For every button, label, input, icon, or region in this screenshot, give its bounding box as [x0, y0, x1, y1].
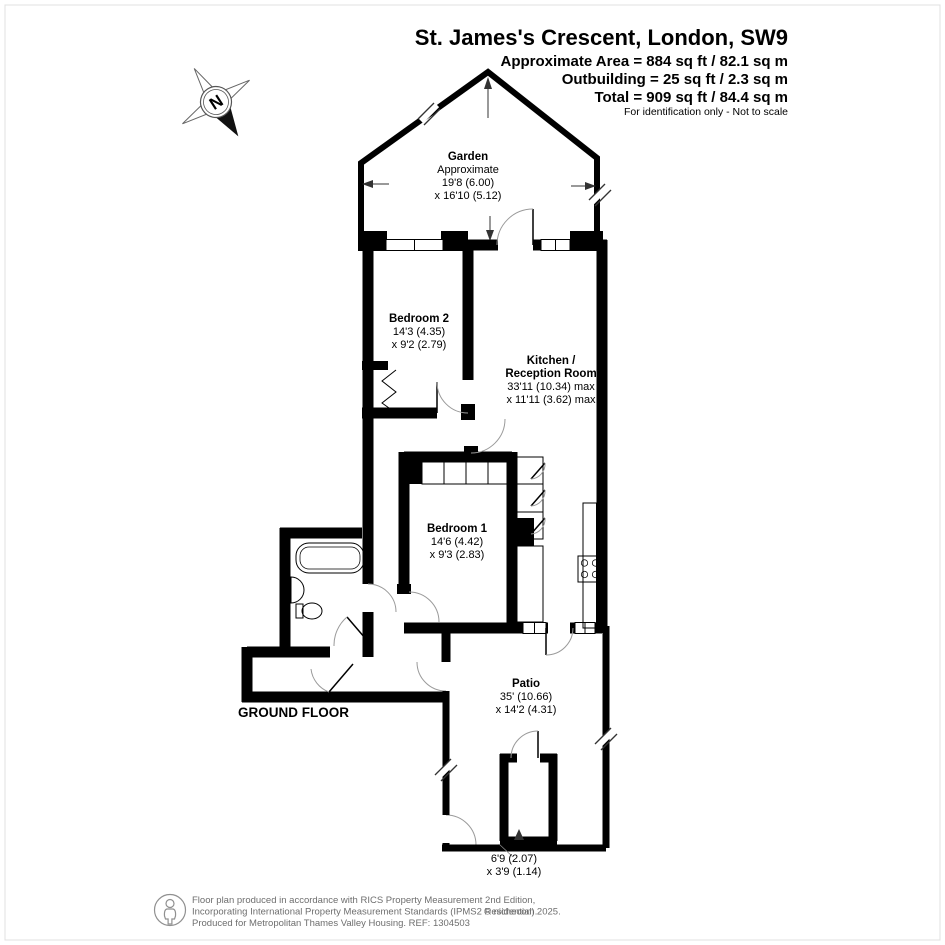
- door-vestibule: [417, 662, 446, 691]
- footer-copyright: © nichecom 2025.: [484, 907, 561, 918]
- svg-text:33'11 (10.34) max: 33'11 (10.34) max: [507, 381, 595, 393]
- svg-text:x 11'11 (3.62) max: x 11'11 (3.62) max: [506, 394, 596, 406]
- interior-exterior-walls: [242, 240, 607, 702]
- svg-text:6'9 (2.07): 6'9 (2.07): [491, 853, 537, 865]
- label-garden: Garden Approximate 19'8 (6.00) x 16'10 (…: [435, 151, 502, 202]
- bathroom-fixtures: [291, 543, 364, 619]
- door-bedroom1: [409, 592, 439, 622]
- window-bedroom2-top: [386, 240, 443, 251]
- svg-text:Bedroom 2: Bedroom 2: [389, 313, 449, 325]
- windows: [386, 240, 595, 634]
- kitchen-counter-left: [515, 546, 543, 622]
- footer-line1: Floor plan produced in accordance with R…: [192, 895, 535, 906]
- wall-stubs: [358, 231, 603, 634]
- closet-bifold-door: [382, 370, 396, 413]
- window-kitchen-top: [541, 240, 570, 251]
- title-block: St. James's Crescent, London, SW9 Approx…: [415, 25, 788, 118]
- total-area: Total = 909 sq ft / 84.4 sq m: [594, 89, 788, 106]
- svg-text:x 3'9 (1.14): x 3'9 (1.14): [487, 866, 542, 878]
- compass-icon: N: [161, 47, 272, 159]
- footer-line3: Produced for Metropolitan Thames Valley …: [192, 918, 470, 929]
- wardrobe-bedroom1: [422, 460, 510, 484]
- door-bathroom: [368, 584, 396, 612]
- door-garden: [497, 209, 533, 245]
- svg-text:14'3 (4.35): 14'3 (4.35): [393, 326, 445, 338]
- svg-text:14'6 (4.42): 14'6 (4.42): [431, 536, 483, 548]
- patio-break-marks: [435, 728, 617, 781]
- page-title: St. James's Crescent, London, SW9: [415, 25, 788, 50]
- toilet: [296, 603, 322, 619]
- bathtub-inner: [300, 547, 360, 569]
- door-front: [311, 664, 353, 692]
- svg-text:Kitchen /: Kitchen /: [527, 355, 576, 367]
- floorplan-page: St. James's Crescent, London, SW9 Approx…: [0, 0, 945, 945]
- outbuilding-arrow: [514, 829, 524, 840]
- svg-text:Garden: Garden: [448, 151, 488, 163]
- outbuilding: [499, 731, 557, 857]
- svg-text:Patio: Patio: [512, 678, 540, 690]
- svg-text:x 9'3 (2.83): x 9'3 (2.83): [430, 549, 485, 561]
- approximate-area: Approximate Area = 884 sq ft / 82.1 sq m: [501, 53, 788, 70]
- outbuilding-wall: [500, 754, 557, 841]
- svg-text:35' (10.66): 35' (10.66): [500, 691, 552, 703]
- door-kitchen-to-patio: [546, 628, 573, 655]
- label-kitchen-reception: Kitchen / Reception Room 33'11 (10.34) m…: [505, 355, 596, 406]
- nichecom-logo-icon: [155, 895, 186, 926]
- svg-text:19'8 (6.00): 19'8 (6.00): [442, 177, 494, 189]
- building-walls: [242, 231, 607, 702]
- label-outbuilding: 6'9 (2.07) x 3'9 (1.14): [487, 853, 542, 878]
- kitchen-counter-right: [583, 503, 597, 628]
- svg-text:x 16'10 (5.12): x 16'10 (5.12): [435, 190, 502, 202]
- svg-text:Bedroom 1: Bedroom 1: [427, 523, 488, 535]
- sink: [291, 577, 304, 603]
- svg-text:Reception Room: Reception Room: [505, 368, 596, 380]
- room-labels: Garden Approximate 19'8 (6.00) x 16'10 (…: [389, 151, 597, 878]
- footer: Floor plan produced in accordance with R…: [155, 895, 561, 930]
- patio-wall: [442, 626, 606, 848]
- floorplan-canvas: St. James's Crescent, London, SW9 Approx…: [0, 0, 945, 945]
- label-bedroom1: Bedroom 1 14'6 (4.42) x 9'3 (2.83): [427, 523, 488, 561]
- patio-boundary: [435, 626, 617, 848]
- window-kitchen-bottom-left: [523, 623, 546, 634]
- page-border: [5, 5, 940, 940]
- disclaimer: For identification only - Not to scale: [624, 106, 788, 118]
- door-patio-side: [446, 815, 476, 845]
- label-patio: Patio 35' (10.66) x 14'2 (4.31): [496, 678, 557, 716]
- floor-label: GROUND FLOOR: [238, 705, 349, 720]
- label-bedroom2: Bedroom 2 14'3 (4.35) x 9'2 (2.79): [389, 313, 449, 351]
- outbuilding-area: Outbuilding = 25 sq ft / 2.3 sq m: [562, 71, 788, 88]
- svg-text:Approximate: Approximate: [437, 164, 499, 176]
- svg-text:x 9'2 (2.79): x 9'2 (2.79): [392, 339, 447, 351]
- svg-text:x 14'2 (4.31): x 14'2 (4.31): [496, 704, 557, 716]
